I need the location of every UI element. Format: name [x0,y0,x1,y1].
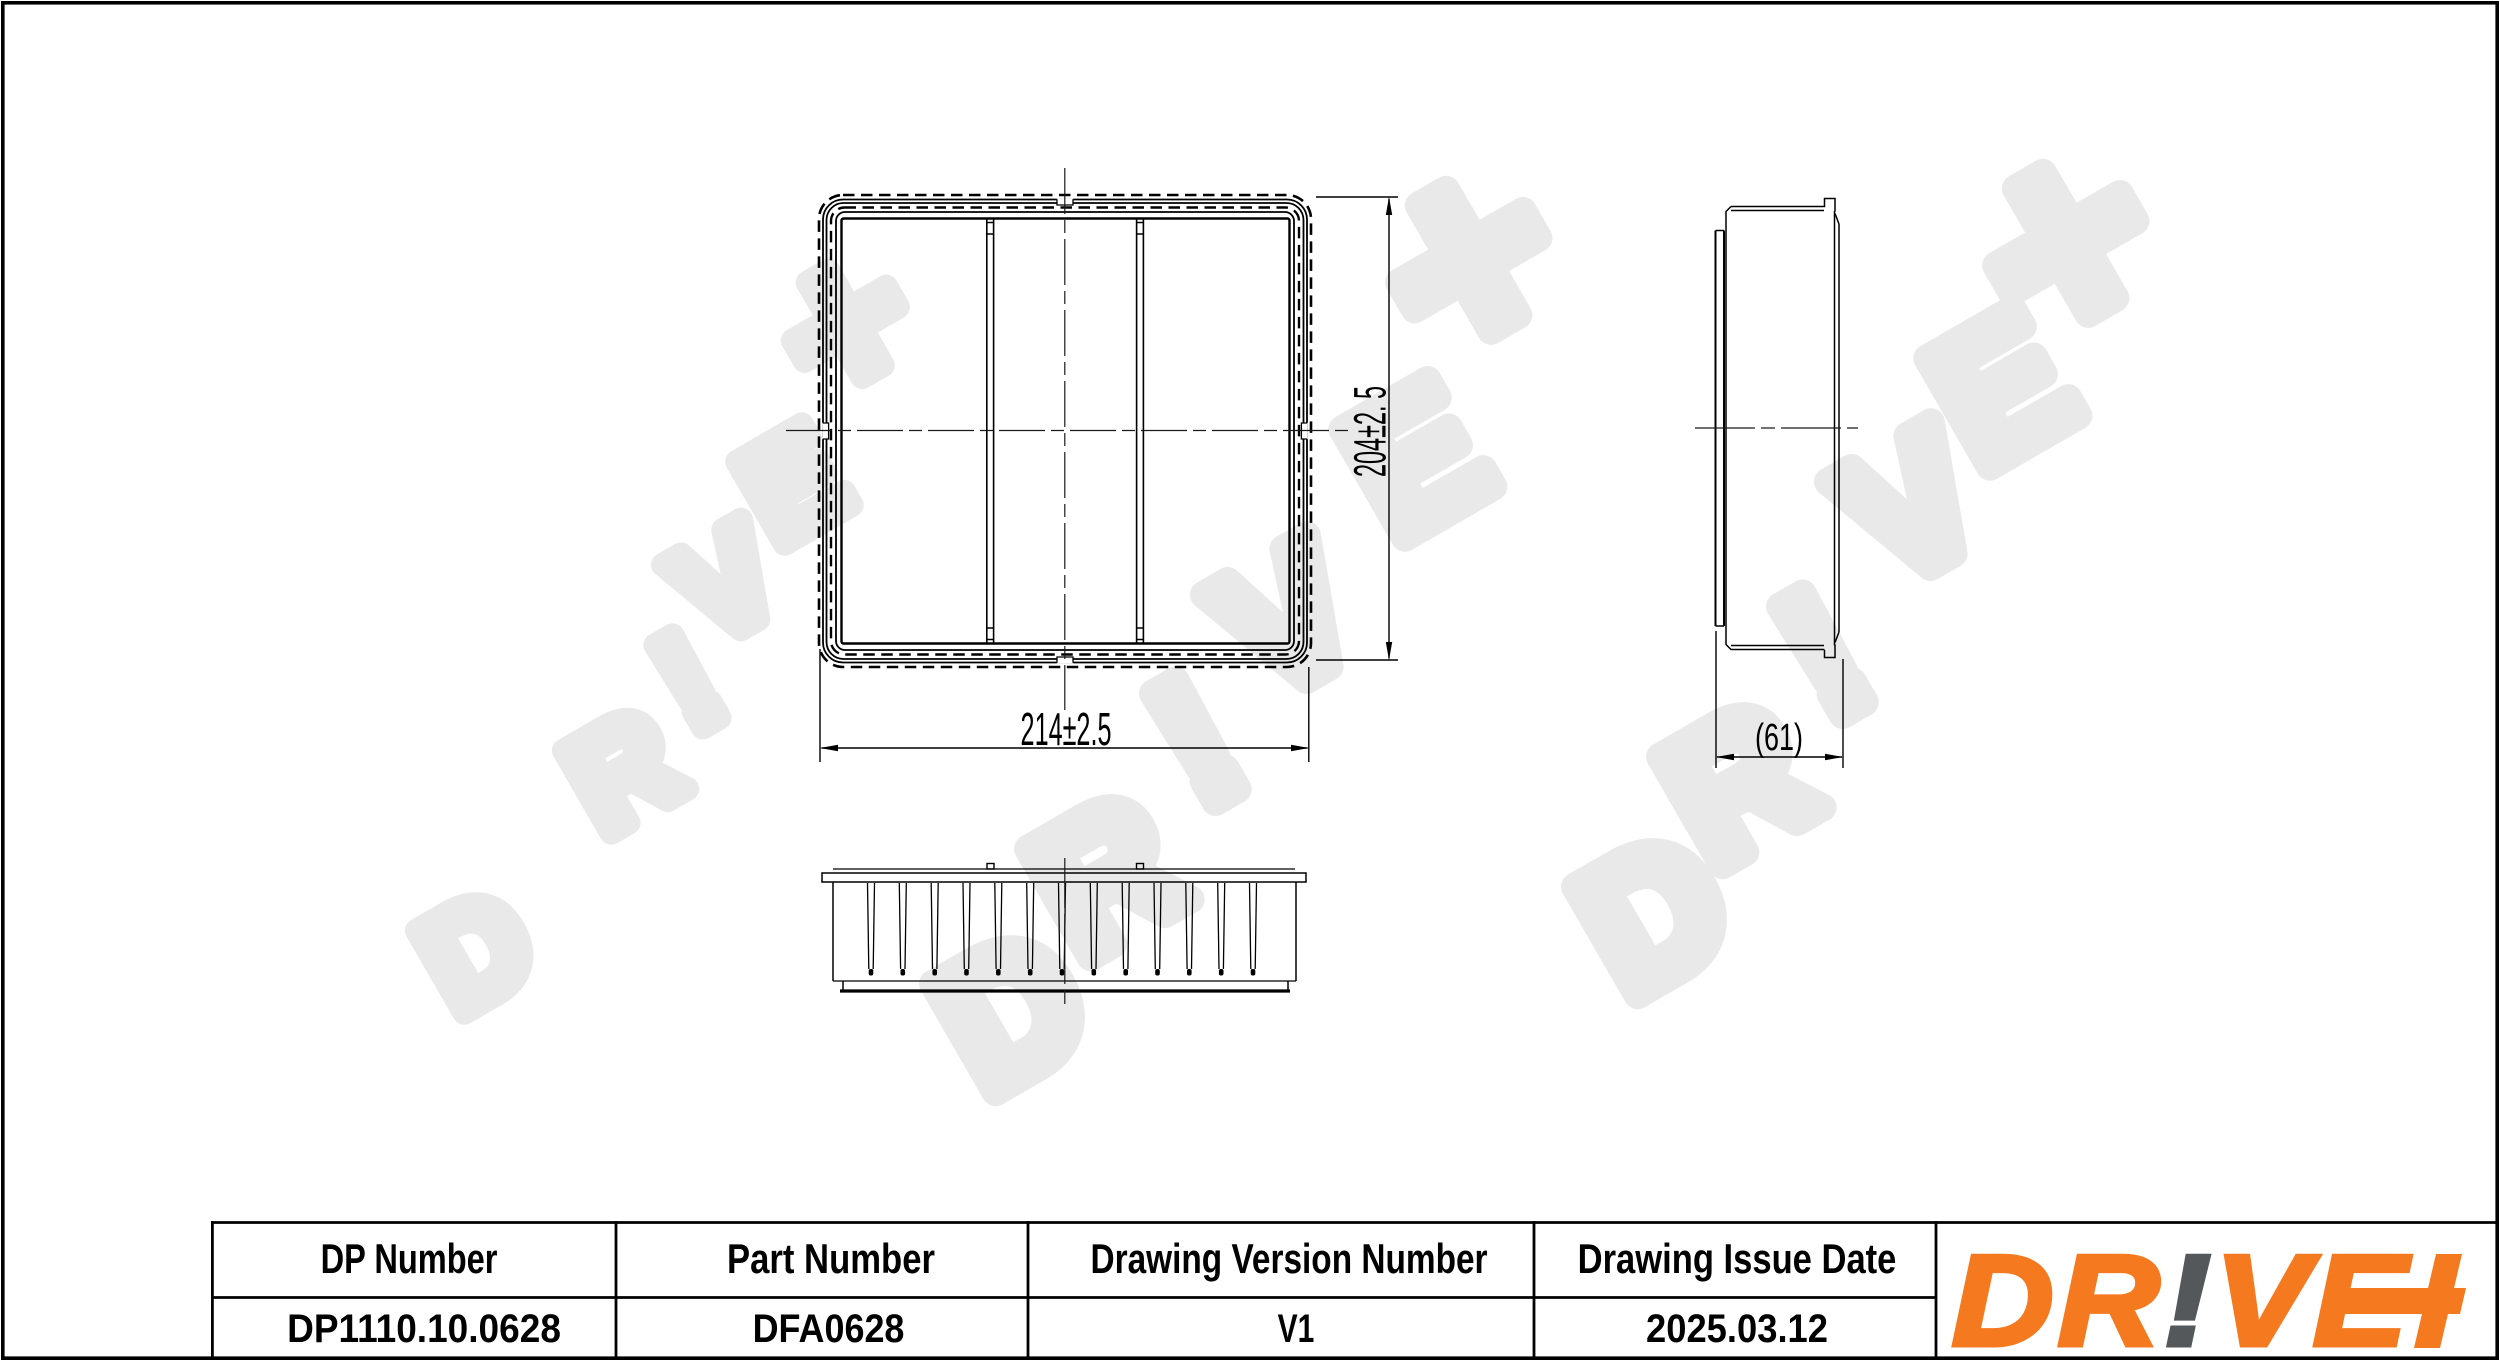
svg-text:DFA0628: DFA0628 [753,1307,905,1351]
svg-text:204±2. 5: 204±2. 5 [1345,386,1395,477]
svg-text:214±2.5: 214±2.5 [1021,703,1112,755]
svg-text:V1: V1 [1278,1307,1315,1351]
svg-text:(61): (61) [1755,715,1803,758]
svg-text:2025.03.12: 2025.03.12 [1646,1306,1828,1351]
svg-text:Drawing Version Number: Drawing Version Number [1090,1236,1487,1282]
svg-text:Drawing Issue Date: Drawing Issue Date [1578,1236,1897,1283]
svg-text:DP1110.10.0628: DP1110.10.0628 [287,1307,561,1352]
svg-text:Part Number: Part Number [727,1236,935,1283]
svg-text:DP Number: DP Number [321,1235,498,1282]
